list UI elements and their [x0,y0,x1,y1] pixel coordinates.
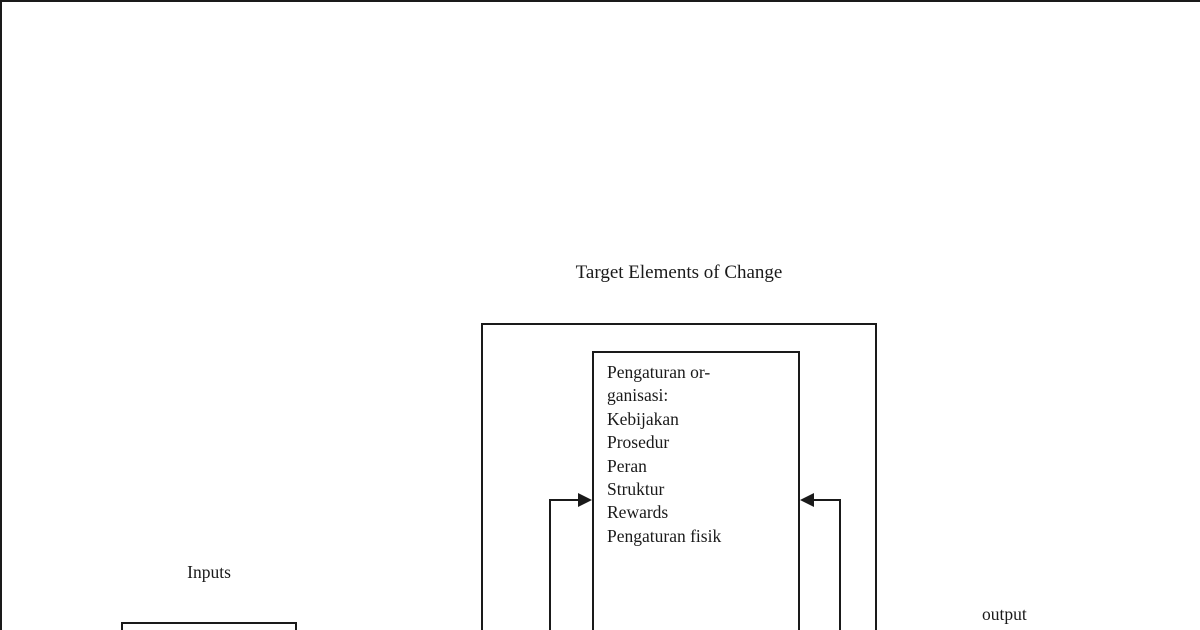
left-arrow-vertical-line [549,499,551,630]
diagram-title: Target Elements of Change [481,262,877,284]
text-line: Pengaturan or- [607,361,792,384]
text-line: Kebijakan [607,408,792,431]
right-arrowhead-icon [800,493,814,507]
diagram-canvas: Target Elements of Change Pengaturan or-… [0,0,1200,630]
left-arrow-horizontal-line [549,499,581,501]
text-line: Struktur [607,478,792,501]
text-line: Prosedur [607,431,792,454]
output-label: output [982,603,1027,625]
text-line: Pengaturan fisik [607,525,792,548]
right-arrow-horizontal-line [812,499,841,501]
right-arrow-vertical-line [839,499,841,630]
inputs-box [121,622,297,630]
organizational-arrangements-text: Pengaturan or-ganisasi:KebijakanProsedur… [607,361,792,548]
image-left-border-line [0,0,2,630]
left-arrowhead-icon [578,493,592,507]
text-line: ganisasi: [607,384,792,407]
text-line: Rewards [607,501,792,524]
text-line: Peran [607,455,792,478]
organizational-arrangements-box: Pengaturan or-ganisasi:KebijakanProsedur… [592,351,800,630]
image-top-border-line [0,0,1200,2]
inputs-label: Inputs [121,561,297,583]
